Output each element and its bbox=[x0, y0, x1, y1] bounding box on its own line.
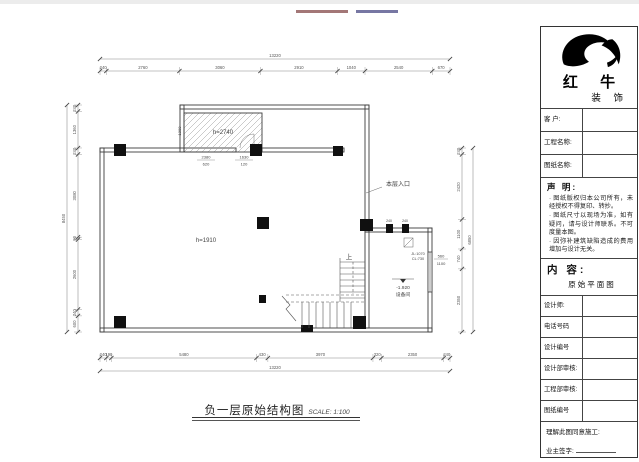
stub-dim2: 240 bbox=[402, 219, 408, 223]
right-window-width: 560 bbox=[438, 254, 445, 259]
field-value bbox=[583, 380, 637, 400]
shaft-symbol bbox=[404, 238, 413, 247]
svg-text:3060: 3060 bbox=[215, 65, 225, 70]
svg-text:13220: 13220 bbox=[269, 53, 281, 58]
svg-text:3970: 3970 bbox=[316, 352, 326, 357]
svg-text:3080: 3080 bbox=[72, 190, 77, 200]
title-underline-thin bbox=[192, 420, 360, 421]
entrance-label: 本层入口 bbox=[386, 180, 410, 188]
field-row-customer: 客 户: bbox=[541, 108, 637, 131]
form-row-drawing-number: 图纸编号 bbox=[541, 400, 637, 421]
field-label: 设计部审核: bbox=[541, 359, 583, 379]
field-label: 客 户: bbox=[541, 109, 583, 131]
right-window-height: 1100 bbox=[437, 261, 446, 266]
field-label: 工程名称: bbox=[541, 132, 583, 154]
form-row-design-review: 设计部审核: bbox=[541, 358, 637, 379]
svg-text:5480: 5480 bbox=[179, 352, 189, 357]
stair-break-line bbox=[282, 296, 296, 321]
svg-text:240: 240 bbox=[100, 65, 108, 70]
hatch-dim1-top: 2380 bbox=[202, 155, 212, 160]
svg-text:2760: 2760 bbox=[138, 65, 148, 70]
svg-text:2600: 2600 bbox=[72, 269, 77, 279]
window-mark-line2: CL:730 bbox=[412, 257, 424, 261]
statement-section: 声 明: 图纸版权归本公司所有，未经授权不得复印、转抄。图纸尺寸以现场为准，如有… bbox=[541, 177, 637, 258]
field-value bbox=[583, 317, 637, 337]
field-label: 电话号码 bbox=[541, 317, 583, 337]
signature-section: 理解此图同意施工: 业主签字: bbox=[541, 421, 637, 457]
svg-text:240: 240 bbox=[72, 147, 77, 155]
svg-text:6850: 6850 bbox=[467, 235, 472, 245]
svg-text:600: 600 bbox=[72, 320, 77, 328]
content-heading: 内 容: bbox=[547, 262, 637, 277]
brand-subtitle: 装 饰 bbox=[541, 90, 637, 104]
form-row-engineering-review: 工程部审核: bbox=[541, 379, 637, 400]
field-label: 设计师: bbox=[541, 296, 583, 316]
field-value bbox=[583, 109, 637, 131]
title-block: 红 牛 装 饰 客 户: 工程名称: 图纸名称: 声 明: 图纸版权归本公司所有… bbox=[540, 26, 638, 458]
svg-text:2350: 2350 bbox=[456, 295, 461, 305]
svg-text:1360: 1360 bbox=[72, 124, 77, 134]
fraction-rules bbox=[197, 160, 448, 259]
dimension-chain-bottom: 24019054804303970320235024013220 bbox=[98, 352, 452, 373]
sheet-title-text: 负一层原始结构图 bbox=[204, 402, 304, 418]
field-value bbox=[583, 155, 637, 177]
sheet-scale-text: SCALE: 1:100 bbox=[308, 409, 349, 416]
statement-heading: 声 明: bbox=[547, 181, 633, 193]
svg-text:90: 90 bbox=[72, 235, 77, 240]
form-row-design-number: 设计编号 bbox=[541, 337, 637, 358]
dimension-chain-right: 2402420110074023506850 bbox=[456, 146, 475, 334]
owner-signature-label: 业主签字: bbox=[546, 448, 574, 455]
staircase bbox=[282, 258, 365, 328]
hatch-dim2-bottom: 120 bbox=[241, 162, 248, 167]
right-window bbox=[428, 252, 432, 292]
form-row-phone: 电话号码 bbox=[541, 316, 637, 337]
statement-list: 图纸版权归本公司所有，未经授权不得复印、转抄。图纸尺寸以现场为准，如有疑问，请与… bbox=[547, 195, 633, 255]
field-row-drawing-name: 图纸名称: bbox=[541, 154, 637, 177]
window-mark-line1: JL:1070 bbox=[411, 252, 425, 256]
svg-text:2420: 2420 bbox=[456, 182, 461, 192]
svg-text:8450: 8450 bbox=[61, 213, 66, 223]
dimension-chain-left: 240136024030809026002406008450 bbox=[61, 103, 82, 334]
main-room-height-label: h=1910 bbox=[196, 238, 217, 244]
field-label: 图纸名称: bbox=[541, 155, 583, 177]
level-value-label: -1.920 bbox=[396, 285, 410, 291]
brand-area: 红 牛 装 饰 bbox=[541, 27, 637, 108]
entrance-leader-line bbox=[366, 187, 382, 193]
svg-text:670: 670 bbox=[438, 65, 446, 70]
title-underline-thick bbox=[192, 417, 360, 418]
field-label: 工程部审核: bbox=[541, 380, 583, 400]
statement-item: 图纸版权归本公司所有，未经授权不得复印、转抄。 bbox=[549, 195, 633, 212]
svg-text:2350: 2350 bbox=[408, 352, 418, 357]
drawing-sheet: h=2740 h=1910 本层入口 上 -1.920 设备间 JL:1070 … bbox=[0, 0, 639, 462]
svg-text:740: 740 bbox=[456, 255, 461, 263]
field-value bbox=[583, 296, 637, 316]
svg-text:430: 430 bbox=[259, 352, 267, 357]
field-value bbox=[583, 132, 637, 154]
hatch-dim2-top: 1630 bbox=[240, 155, 250, 160]
svg-text:240: 240 bbox=[456, 147, 461, 155]
hatch-side-dim: 1300 bbox=[177, 126, 182, 136]
svg-text:320: 320 bbox=[374, 352, 382, 357]
svg-text:240: 240 bbox=[72, 104, 77, 112]
svg-text:13220: 13220 bbox=[269, 365, 281, 370]
field-value bbox=[583, 338, 637, 358]
hatch-dim1-bottom: 620 bbox=[203, 162, 210, 167]
field-value bbox=[583, 359, 637, 379]
brand-name: 红 牛 bbox=[541, 71, 637, 92]
svg-text:1040: 1040 bbox=[347, 65, 357, 70]
level-mark bbox=[392, 279, 414, 283]
svg-text:190: 190 bbox=[105, 352, 113, 357]
field-label: 设计编号 bbox=[541, 338, 583, 358]
svg-text:240: 240 bbox=[443, 352, 451, 357]
stair-up-label: 上 bbox=[346, 252, 353, 261]
content-value: 原始平面图 bbox=[547, 279, 637, 290]
svg-text:240: 240 bbox=[72, 309, 77, 317]
form-row-designer: 设计师: bbox=[541, 295, 637, 316]
svg-text:2540: 2540 bbox=[394, 65, 404, 70]
bull-logo-icon bbox=[553, 29, 625, 71]
statement-item: 因弥补建筑缺陷造成的费用增加与设计无关。 bbox=[549, 238, 633, 255]
svg-text:2910: 2910 bbox=[294, 65, 304, 70]
field-value bbox=[583, 401, 637, 421]
field-row-project-name: 工程名称: bbox=[541, 131, 637, 154]
content-section: 内 容: 原始平面图 bbox=[541, 258, 637, 295]
stub-dim1: 240 bbox=[386, 219, 392, 223]
level-room-label: 设备间 bbox=[396, 291, 411, 298]
agreement-text: 理解此图同意施工: bbox=[546, 426, 633, 436]
signature-line bbox=[576, 445, 616, 453]
dimension-chain-top: 2402760306029101040254067013220 bbox=[98, 53, 452, 75]
statement-item: 图纸尺寸以现场为准，如有疑问，请与设计师联系。不可度量本图。 bbox=[549, 212, 633, 238]
svg-text:1100: 1100 bbox=[456, 229, 461, 239]
floor-plan: h=2740 h=1910 本层入口 上 -1.920 设备间 JL:1070 … bbox=[0, 0, 541, 462]
upper-room-height-label: h=2740 bbox=[213, 130, 234, 136]
field-label: 图纸编号 bbox=[541, 401, 583, 421]
